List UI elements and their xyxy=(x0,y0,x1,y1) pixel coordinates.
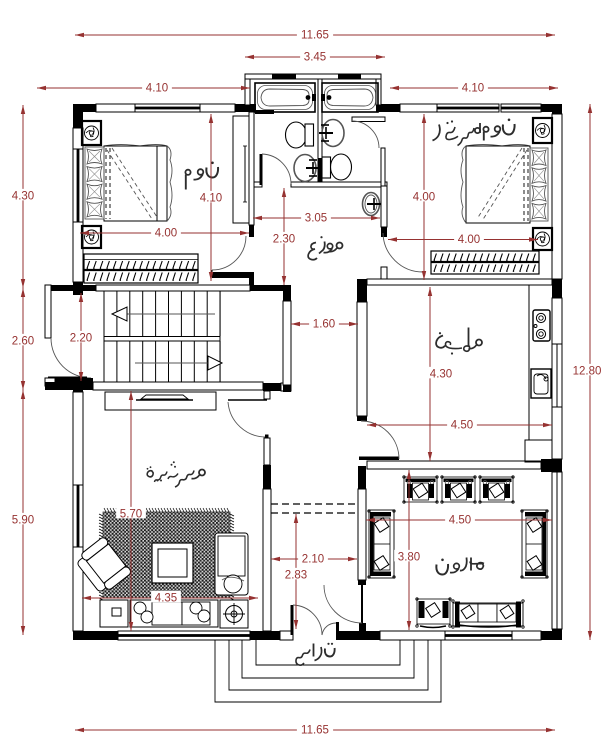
svg-text:11.65: 11.65 xyxy=(301,29,329,41)
svg-text:2.10: 2.10 xyxy=(302,553,324,565)
svg-text:2.20: 2.20 xyxy=(70,332,92,344)
svg-text:4.50: 4.50 xyxy=(451,419,473,431)
svg-text:4.50: 4.50 xyxy=(449,514,471,526)
svg-text:3.45: 3.45 xyxy=(304,51,326,63)
svg-text:12.80: 12.80 xyxy=(573,365,602,377)
svg-text:4.35: 4.35 xyxy=(155,592,177,604)
svg-text:2.83: 2.83 xyxy=(285,569,307,581)
svg-text:3.05: 3.05 xyxy=(305,212,327,224)
svg-text:4.00: 4.00 xyxy=(413,191,435,203)
svg-text:11.65: 11.65 xyxy=(301,724,329,736)
svg-text:4.10: 4.10 xyxy=(146,82,168,94)
svg-text:4.00: 4.00 xyxy=(155,227,177,239)
svg-text:2.30: 2.30 xyxy=(273,233,295,245)
svg-text:2.60: 2.60 xyxy=(12,335,34,347)
svg-text:4.30: 4.30 xyxy=(430,368,452,380)
svg-text:4.00: 4.00 xyxy=(458,234,480,246)
svg-text:1.60: 1.60 xyxy=(313,318,335,330)
svg-text:3.80: 3.80 xyxy=(398,551,420,563)
svg-text:4.30: 4.30 xyxy=(12,190,34,202)
svg-text:4.10: 4.10 xyxy=(462,82,484,94)
svg-text:4.10: 4.10 xyxy=(200,192,222,204)
svg-text:5.90: 5.90 xyxy=(12,514,34,526)
svg-text:5.70: 5.70 xyxy=(120,508,142,520)
